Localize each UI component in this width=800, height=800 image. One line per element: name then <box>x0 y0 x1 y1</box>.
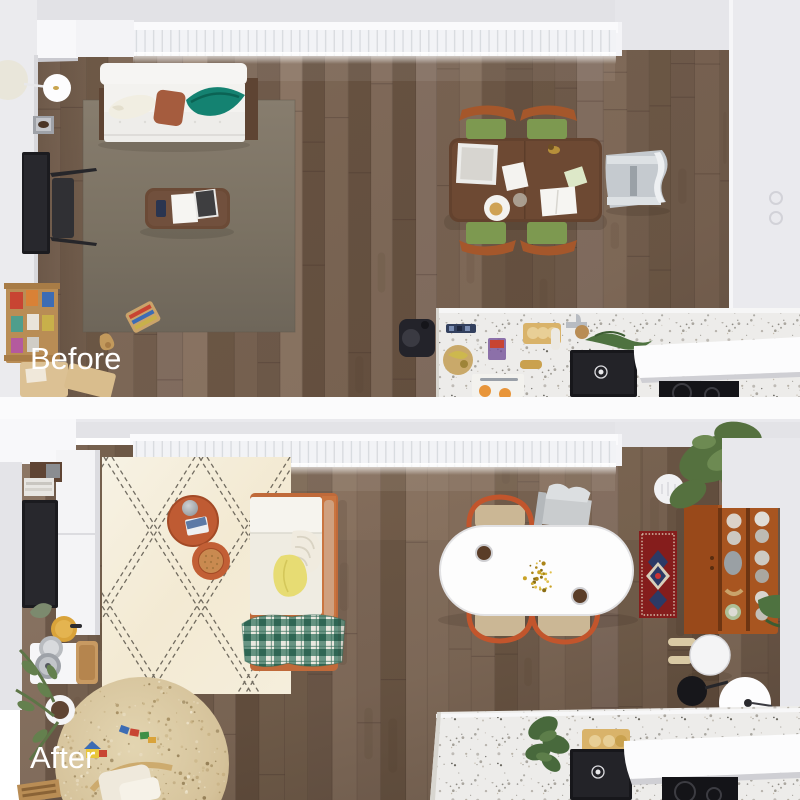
svg-text:After: After <box>30 740 95 775</box>
svg-text:Before: Before <box>30 341 121 376</box>
